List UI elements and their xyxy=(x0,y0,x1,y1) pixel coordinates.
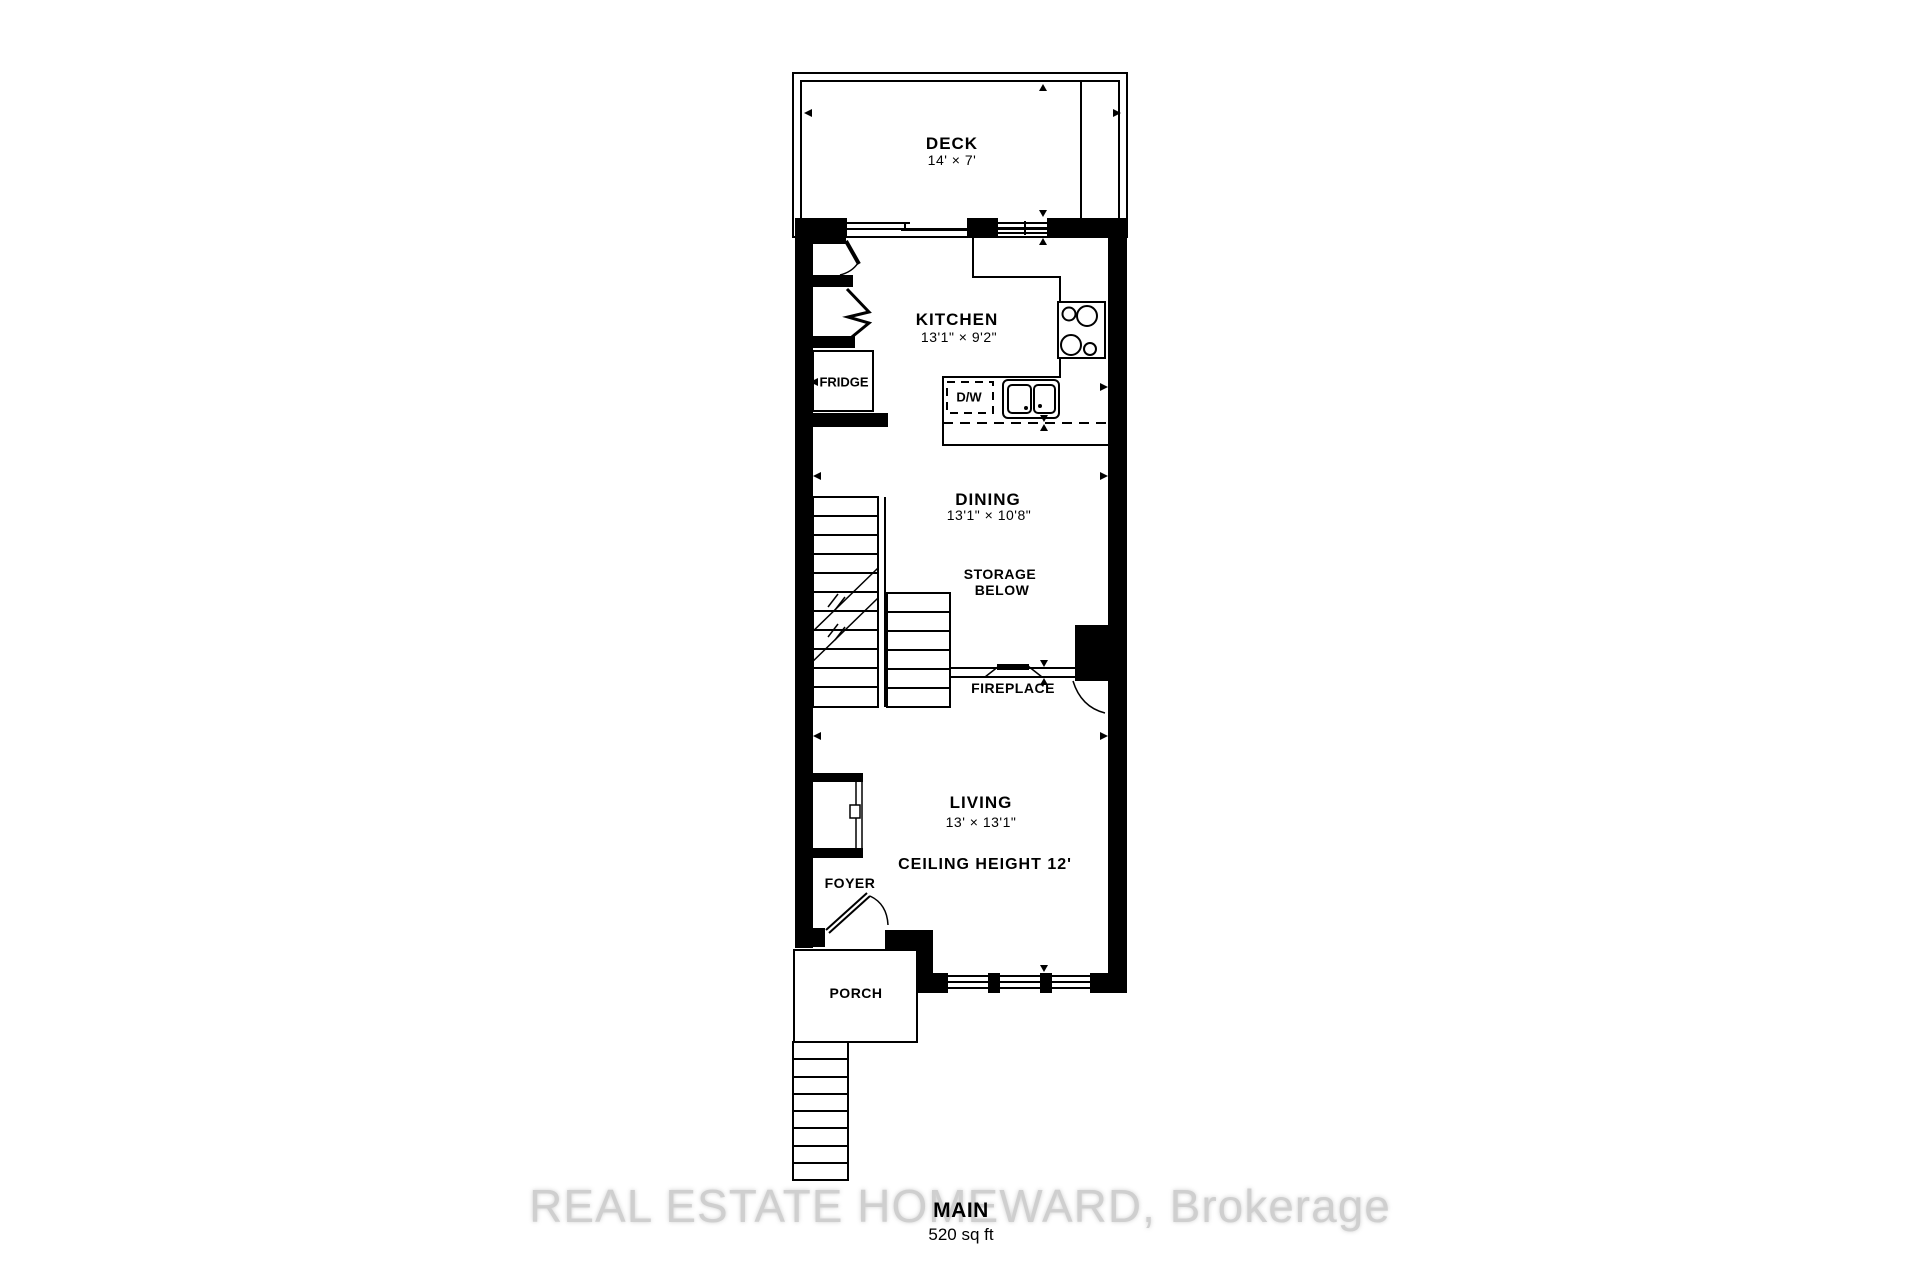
floor-name: MAIN xyxy=(933,1199,989,1223)
exterior-steps xyxy=(793,1042,848,1180)
deck-label: DECK xyxy=(926,134,978,154)
fridge-label: FRIDGE xyxy=(819,375,868,390)
kitchen-dimensions: 13'1" × 9'2" xyxy=(921,329,997,345)
living-dimensions: 13' × 13'1" xyxy=(946,814,1017,830)
foyer-closet xyxy=(810,773,863,858)
entry-door xyxy=(813,234,859,287)
fireplace xyxy=(951,625,1108,713)
storage-below-label-line1: STORAGE xyxy=(964,566,1036,582)
bifold-closet-door xyxy=(813,289,869,348)
floor-plan-drawing xyxy=(0,0,1920,1280)
foyer-label: FOYER xyxy=(825,875,876,891)
floor-plan-page: REAL ESTATE HOMEWARD, Brokerage DECK 14'… xyxy=(0,0,1920,1280)
storage-below-label-line2: BELOW xyxy=(975,582,1030,598)
dimension-arrow-icons xyxy=(804,84,1121,972)
fireplace-label: FIREPLACE xyxy=(971,680,1055,696)
front-door xyxy=(826,893,888,933)
ceiling-height-note: CEILING HEIGHT 12' xyxy=(898,856,1072,874)
living-label: LIVING xyxy=(950,793,1013,813)
sliding-door-deck xyxy=(998,221,1047,235)
dining-dimensions: 13'1" × 10'8" xyxy=(947,507,1031,523)
stove xyxy=(1058,302,1105,358)
deck-dimensions: 14' × 7' xyxy=(928,152,977,168)
double-sink xyxy=(1003,380,1059,418)
porch-label: PORCH xyxy=(829,985,882,1001)
staircase xyxy=(806,497,950,707)
window-bottom xyxy=(945,976,1090,988)
kitchen-label: KITCHEN xyxy=(916,310,999,330)
floor-area: 520 sq ft xyxy=(928,1225,993,1245)
dishwasher-label: D/W xyxy=(956,390,981,405)
